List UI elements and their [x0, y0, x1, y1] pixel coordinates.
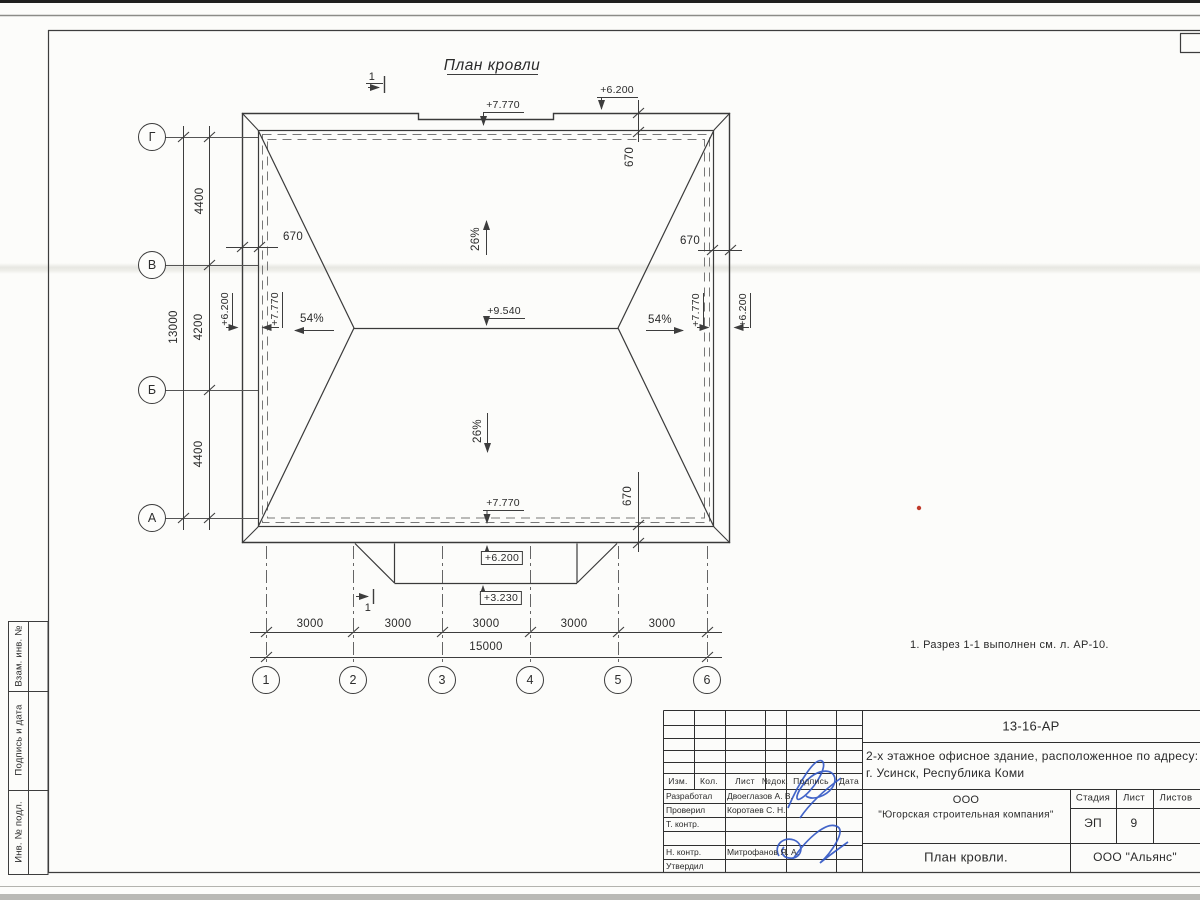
- slope-main-upper: 26%: [470, 227, 482, 251]
- dim-overhang-bottom: 670: [622, 486, 634, 506]
- sheet-note: 1. Разрез 1-1 выполнен см. л. АР-10.: [910, 639, 1109, 651]
- titleblock-role-developed: Разработал: [666, 791, 712, 801]
- scan-red-speck: [917, 506, 921, 510]
- side-label-podpis: Подпись и дата: [14, 704, 25, 775]
- elevation-parapet-top: +7.770: [486, 99, 520, 111]
- elevation-parapet-right: +7.770: [690, 293, 702, 327]
- dim-vertical-span-2: 4200: [193, 314, 205, 341]
- scan-edge-top: [0, 0, 1200, 3]
- dim-overhang-top: 670: [624, 147, 636, 167]
- dim-overhang-right: 670: [680, 235, 700, 247]
- side-label-vzam: Взам. инв. №: [14, 625, 25, 686]
- axis-bubble-row-v: В: [138, 251, 166, 279]
- titleblock-role-checked: Проверил: [666, 805, 705, 815]
- titleblock-sheet-label: Лист: [1123, 793, 1145, 804]
- titleblock-name-developed: Двоеглазов А. В.: [727, 791, 793, 801]
- dim-horizontal-span-2: 3000: [385, 618, 412, 630]
- titleblock-sheet-value: 9: [1131, 816, 1138, 830]
- titleblock-stage-label: Стадия: [1076, 793, 1110, 804]
- dim-overhang-left: 670: [283, 231, 303, 243]
- axis-bubble-col-6: 6: [693, 666, 721, 694]
- titleblock-company-line1: ООО: [953, 794, 980, 806]
- elevation-eave-right: +6.200: [737, 293, 749, 327]
- overhang-dimension-lines: [226, 100, 742, 552]
- dim-horizontal-span-1: 3000: [297, 618, 324, 630]
- axis-bubble-col-4: 4: [516, 666, 544, 694]
- dim-vertical-total: 13000: [168, 310, 180, 343]
- titleblock-col-list: Лист: [735, 776, 755, 786]
- titleblock-col-kol: Кол.: [700, 776, 718, 786]
- section-mark-label-top: 1: [369, 71, 375, 83]
- elevation-eave-canopy: +6.200: [481, 551, 523, 565]
- elevation-eave-left: +6.200: [219, 292, 231, 326]
- titleblock-project-line2: г. Усинск, Республика Коми: [866, 766, 1024, 780]
- axis-bubble-col-1: 1: [252, 666, 280, 694]
- dim-horizontal-span-4: 3000: [561, 618, 588, 630]
- drawing-linework: [0, 0, 1200, 900]
- drawing-sheet: План кровли 1 1 Г В Б А 1 2 3 4 5 6 1300…: [0, 0, 1200, 900]
- dim-horizontal-span-3: 3000: [473, 618, 500, 630]
- titleblock-name-ncontrol: Митрофанов Я. А.: [727, 847, 799, 857]
- section-mark-label-bottom: 1: [365, 602, 371, 614]
- slope-side-left: 54%: [300, 313, 324, 325]
- titleblock-col-doc: №док.: [762, 776, 788, 786]
- titleblock-drawing-title: План кровли.: [924, 850, 1008, 865]
- titleblock-sheets-label: Листов: [1160, 793, 1193, 804]
- side-label-inv: Инв. № подл.: [14, 801, 25, 863]
- titleblock-name-checked: Коротаев С. Н.: [727, 805, 785, 815]
- axis-bubble-col-2: 2: [339, 666, 367, 694]
- titleblock-col-izm: Изм.: [668, 776, 687, 786]
- axis-bubble-row-g: Г: [138, 123, 166, 151]
- roof-hips-ridge: [258, 130, 714, 527]
- dimension-ticks: [178, 108, 736, 662]
- elevation-ridge: +9.540: [487, 305, 521, 317]
- dim-horizontal-total: 15000: [469, 641, 502, 653]
- titleblock-stage-value: ЭП: [1084, 816, 1102, 830]
- elevation-leaders: [226, 98, 751, 591]
- axis-bubble-row-b: Б: [138, 376, 166, 404]
- axis-bubble-col-5: 5: [604, 666, 632, 694]
- page-title: План кровли: [444, 57, 540, 75]
- axis-bubble-col-3: 3: [428, 666, 456, 694]
- dim-vertical-span-1: 4400: [194, 188, 206, 215]
- elevation-eave-top: +6.200: [600, 84, 634, 96]
- titleblock-role-ncontrol: Н. контр.: [666, 847, 701, 857]
- elevation-canopy: +3.230: [480, 591, 522, 605]
- titleblock-col-podpis: Подпись: [793, 776, 829, 786]
- titleblock-role-tcontrol: Т. контр.: [666, 819, 699, 829]
- dim-horizontal-span-5: 3000: [649, 618, 676, 630]
- elevation-parapet-bottom: +7.770: [486, 497, 520, 509]
- elevation-parapet-left: +7.770: [269, 292, 281, 326]
- titleblock-approver-org: ООО "Альянс": [1093, 850, 1177, 864]
- titleblock-project-line1: 2-х этажное офисное здание, расположенно…: [866, 749, 1198, 763]
- titleblock-doc-number: 13-16-АР: [1002, 719, 1059, 734]
- axis-bubble-row-a: А: [138, 504, 166, 532]
- scan-edge-bottom: [0, 894, 1200, 900]
- titleblock-role-approved: Утвердил: [666, 861, 704, 871]
- slope-side-right: 54%: [648, 314, 672, 326]
- titleblock-company-line2: "Югорская строительная компания": [878, 810, 1053, 821]
- titleblock-col-data: Дата: [839, 776, 859, 786]
- slope-main-lower: 26%: [472, 419, 484, 443]
- dim-vertical-span-3: 4400: [193, 441, 205, 468]
- section-marks: [356, 76, 385, 604]
- slope-arrows: [295, 221, 683, 452]
